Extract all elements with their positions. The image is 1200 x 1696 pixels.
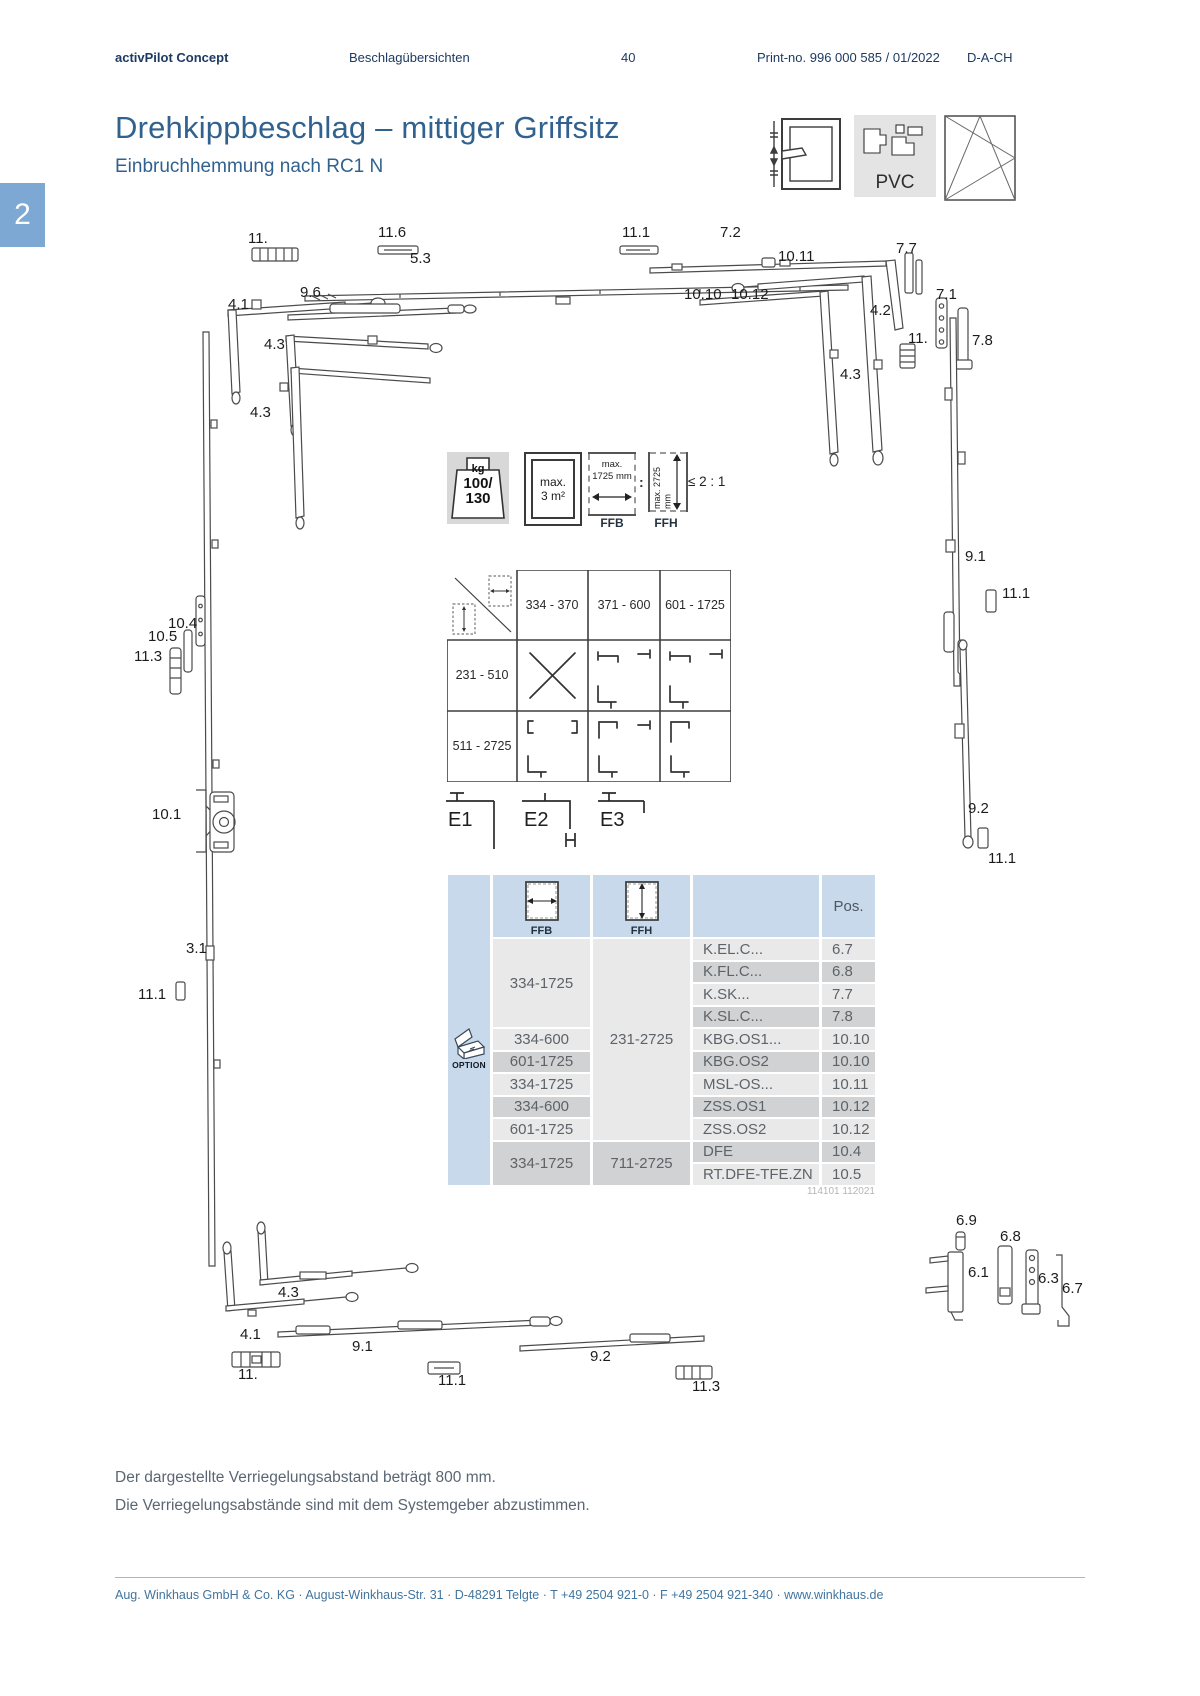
weight-badge: kg 100/ 130 <box>447 452 509 524</box>
part-label: 10.5 <box>148 628 177 645</box>
component-name: KBG.OS1... <box>693 1029 819 1050</box>
part-label: 11. <box>238 1366 258 1383</box>
bottom-rail-9-1 <box>278 1317 562 1338</box>
ffh-axis-icon <box>453 604 475 634</box>
part-label: 10.12 <box>731 286 769 303</box>
striker-part-11-bottom <box>232 1352 280 1367</box>
ffb-column-header: FFB <box>493 875 590 937</box>
part-11-3-left <box>170 648 181 694</box>
part-label: 11. <box>908 330 928 347</box>
component-name: K.SK... <box>693 984 819 1005</box>
part-label: 6.9 <box>956 1212 977 1229</box>
ffb-cell: 334-600 <box>493 1029 590 1050</box>
ffb-cell: 334-1725 <box>493 939 590 1027</box>
part-10-4 <box>196 596 205 646</box>
ffb-cell: 334-1725 <box>493 1074 590 1095</box>
component-pos: 10.10 <box>822 1052 875 1073</box>
part-11-1-left <box>176 982 185 1000</box>
part-label: 9.2 <box>968 800 989 817</box>
right-rail-9-1 <box>944 318 966 686</box>
matrix-col-3: 601 - 1725 <box>665 598 725 612</box>
ffb-cell: 334-1725 <box>493 1142 590 1185</box>
part-label: 7.2 <box>720 224 741 241</box>
ratio-colon: : <box>639 474 644 490</box>
scheme-e3-label: E3 <box>600 809 624 832</box>
part-label: 9.6 <box>300 284 321 301</box>
scheme-e1: E1 <box>438 785 518 855</box>
option-label: OPTION <box>448 1060 490 1070</box>
option-icon: OPTION <box>448 1025 490 1070</box>
part-label: 4.3 <box>264 336 285 353</box>
ffb-cell: 601-1725 <box>493 1052 590 1073</box>
matrix-row-1: 231 - 510 <box>456 668 509 682</box>
part-6-8 <box>998 1246 1012 1304</box>
ffh-badge-label: FFH <box>654 516 677 530</box>
component-name: KBG.OS2 <box>693 1052 819 1073</box>
part-label: 11.3 <box>692 1378 720 1395</box>
open-box-icon <box>450 1025 488 1059</box>
part-label: 11.1 <box>622 224 650 241</box>
component-name: ZSS.OS1 <box>693 1097 819 1118</box>
component-pos: 10.12 <box>822 1119 875 1140</box>
component-name: K.FL.C... <box>693 962 819 983</box>
catalog-page: activPilot Concept Beschlagübersichten 4… <box>0 0 1200 1696</box>
size-matrix: 334 - 370 371 - 600 601 - 1725 231 - 510… <box>447 570 731 782</box>
part-label: 11.1 <box>438 1372 466 1389</box>
part-6-9 <box>956 1232 965 1250</box>
part-label: 7.8 <box>972 332 993 349</box>
component-name: ZSS.OS2 <box>693 1119 819 1140</box>
component-pos: 10.11 <box>822 1074 875 1095</box>
part-label: 11.6 <box>378 224 406 241</box>
component-pos: 10.5 <box>822 1164 875 1185</box>
part-7-1 <box>936 298 947 348</box>
part-label: 5.3 <box>410 250 431 267</box>
part-label: 11.1 <box>988 850 1016 867</box>
ffh-header-icon <box>624 880 660 924</box>
ffb-cell: 334-600 <box>493 1097 590 1118</box>
part-label: 7.1 <box>936 286 957 303</box>
matrix-row-2: 511 - 2725 <box>453 739 512 753</box>
part-11-mid <box>900 344 915 368</box>
component-pos: 6.7 <box>822 939 875 960</box>
component-pos: 10.4 <box>822 1142 875 1163</box>
ffb-badge-label: FFB <box>600 516 623 530</box>
scheme-e2: E2 <box>514 785 594 855</box>
part-label: 6.3 <box>1038 1270 1059 1287</box>
doc-number: 114101 112021 <box>640 1186 875 1197</box>
component-pos: 10.12 <box>822 1097 875 1118</box>
matrix-col-1: 334 - 370 <box>526 598 579 612</box>
component-pos: 7.8 <box>822 1007 875 1028</box>
ffb-header-label: FFB <box>531 925 552 937</box>
ffh-header-label: FFH <box>631 925 652 937</box>
part-label: 6.7 <box>1062 1280 1083 1297</box>
part-label: 4.3 <box>250 404 271 421</box>
part-label: 10.11 <box>778 248 814 265</box>
part-label: 7.7 <box>896 240 917 257</box>
component-pos: 6.8 <box>822 962 875 983</box>
part-11-1-top <box>620 246 658 254</box>
part-label: 9.1 <box>352 1338 373 1355</box>
ffb-axis-icon <box>489 576 511 606</box>
striker-part-11-top <box>252 248 298 261</box>
matrix-cell-glyphs <box>528 650 722 777</box>
component-name: DFE <box>693 1142 819 1163</box>
ffh-cell: 231-2725 <box>593 939 690 1140</box>
component-pos: 10.10 <box>822 1029 875 1050</box>
ffh-max-text: max. 2725 mm <box>652 467 672 509</box>
pos-column-header: Pos. <box>822 875 875 937</box>
footer-text: Aug. Winkhaus GmbH & Co. KG · August-Win… <box>115 1588 883 1602</box>
part-label: 11.1 <box>1002 585 1030 602</box>
width-arrow-icon <box>592 490 632 504</box>
name-column-header <box>693 875 819 937</box>
part-11-1-right <box>986 590 996 612</box>
ffh-cell: 711-2725 <box>593 1142 690 1185</box>
weight-value-2: 130 <box>447 491 509 507</box>
part-label: 11. <box>248 230 268 247</box>
ffh-max-badge: max. 2725 mm <box>648 452 688 512</box>
option-column: OPTION <box>448 875 490 1185</box>
part-label: 9.1 <box>965 548 986 565</box>
part-label: 11.1 <box>138 986 166 1003</box>
gear-lock-10-1 <box>196 790 235 852</box>
ffb-cell: 601-1725 <box>493 1119 590 1140</box>
component-name: RT.DFE-TFE.ZN <box>693 1164 819 1185</box>
part-label: 3.1 <box>186 940 207 957</box>
part-label: 10.1 <box>152 806 181 823</box>
max-area-line2: 3 m² <box>541 489 565 503</box>
scheme-e3: E3 <box>590 785 670 855</box>
ffb-max-badge: max. 1725 mm <box>588 452 636 516</box>
part-7-7 <box>905 253 922 294</box>
part-label: 6.1 <box>968 1264 989 1281</box>
aspect-ratio-limit: ≤ 2 : 1 <box>688 474 725 489</box>
component-pos: 7.7 <box>822 984 875 1005</box>
component-name: K.EL.C... <box>693 939 819 960</box>
part-label: 6.8 <box>1000 1228 1021 1245</box>
scheme-e1-label: E1 <box>448 809 472 832</box>
max-area-line1: max. <box>540 475 566 489</box>
max-area-badge: max. 3 m² <box>524 452 582 526</box>
configuration-table: OPTION FFB FFH Pos. 334-1725 <box>448 875 875 1185</box>
weight-unit: kg <box>447 464 509 476</box>
ffh-column-header: FFH <box>593 875 690 937</box>
corner-drive-4-3-a <box>286 335 442 436</box>
matrix-col-2: 371 - 600 <box>598 598 651 612</box>
corner-drive-4-3-c <box>700 291 838 466</box>
part-label: 11.3 <box>134 648 162 665</box>
part-label: 9.2 <box>590 1348 611 1365</box>
ffb-header-icon <box>524 880 560 924</box>
corner-drive-4-3-d <box>257 1222 418 1285</box>
scheme-e2-label: E2 <box>524 809 548 832</box>
part-label: 4.3 <box>840 366 861 383</box>
height-arrow-icon <box>671 454 683 510</box>
bottom-rail-9-2 <box>520 1334 704 1351</box>
note-line-1: Der dargestellte Verriegelungsabstand be… <box>115 1469 496 1487</box>
part-10-5 <box>184 630 192 672</box>
striker-6-1 <box>926 1252 963 1320</box>
corner-drive-4-3-b <box>280 367 430 529</box>
component-name: MSL-OS... <box>693 1074 819 1095</box>
note-line-2: Die Verriegelungsabstände sind mit dem S… <box>115 1497 590 1515</box>
part-10-11 <box>762 258 775 267</box>
part-label: 4.2 <box>870 302 891 319</box>
footer-rule <box>115 1577 1085 1578</box>
ffb-max-line2: 1725 mm <box>588 471 636 483</box>
weight-value-1: 100/ <box>447 476 509 492</box>
part-label: 4.1 <box>240 1326 261 1343</box>
component-name: K.SL.C... <box>693 1007 819 1028</box>
part-11-1-right-bottom <box>978 828 988 848</box>
part-label: 4.3 <box>278 1284 299 1301</box>
part-label: 10.10 <box>684 286 722 303</box>
ffb-max-line1: max. <box>588 459 636 471</box>
part-label: 4.1 <box>228 296 249 313</box>
